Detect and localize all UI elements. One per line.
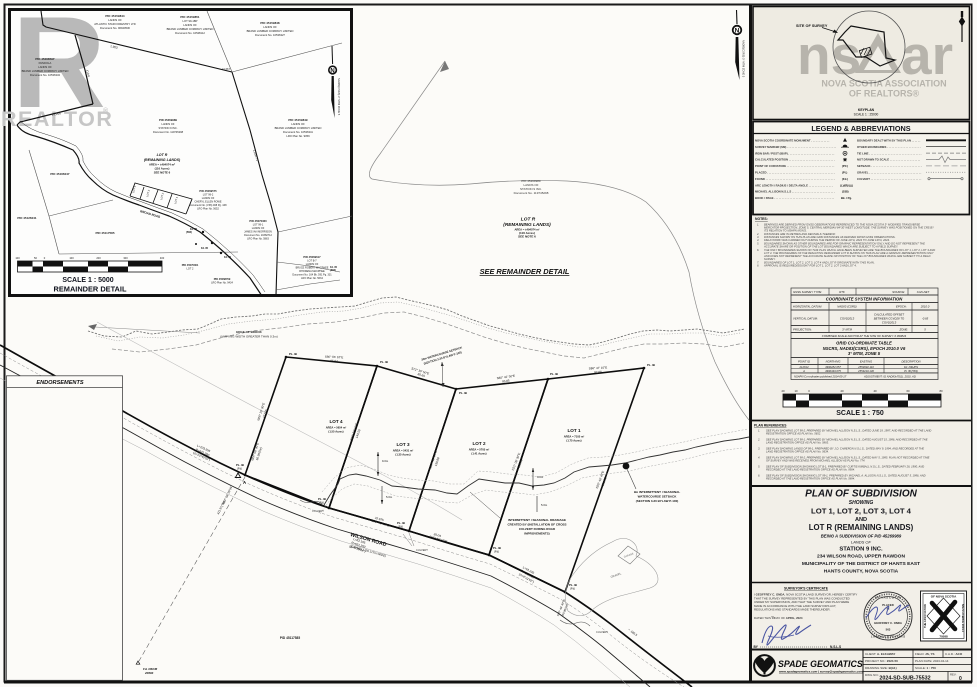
svg-text:ARC LENGTH / RADIUS / DELTA AN: ARC LENGTH / RADIUS / DELTA ANGLE . . . … — [755, 183, 833, 187]
svg-text:(583): (583) — [186, 231, 192, 234]
svg-text:0: 0 — [959, 676, 962, 682]
svg-text:PL. IB: PL. IB — [380, 360, 388, 364]
svg-text:LOT 3: LOT 3 — [396, 442, 409, 447]
svg-text:LOT 1: LOT 1 — [567, 428, 580, 433]
svg-text:CGVD2013: CGVD2013 — [882, 321, 897, 325]
svg-text:-0.65: -0.65 — [922, 317, 929, 321]
svg-text:Fd. IB: Fd. IB — [201, 247, 208, 250]
svg-text:4990282.057: 4990282.057 — [825, 365, 841, 369]
svg-text:POINT ID: POINT ID — [798, 360, 810, 364]
svg-text:LOT R (REMAINING LANDS): LOT R (REMAINING LANDS) — [809, 523, 914, 532]
svg-text:ENDORSEMENTS: ENDORSEMENTS — [36, 380, 84, 386]
svg-text:100: 100 — [69, 256, 74, 260]
svg-text:60: 60 — [906, 389, 910, 393]
svg-text:CGVD2013: CGVD2013 — [840, 317, 855, 321]
svg-text:TIE LINE . . . . . . . . . . .: TIE LINE . . . . . . . . . . . . . . . .… — [857, 151, 922, 155]
svg-text:234 WILSON ROAD, UPPER RAWDON: 234 WILSON ROAD, UPPER RAWDON — [817, 554, 906, 560]
svg-text:PID 45166047: PID 45166047 — [50, 172, 70, 176]
svg-text:REALTOR: REALTOR — [1, 107, 113, 131]
svg-text:5.0m: 5.0m — [541, 503, 548, 507]
svg-text:CALCULATED POSITION . . . . .: CALCULATED POSITION . . . . . . . . . . … — [755, 158, 835, 162]
svg-text:PROJECTION:: PROJECTION: — [793, 327, 812, 331]
svg-text:VERTICAL DATUM:: VERTICAL DATUM: — [793, 317, 818, 321]
svg-text:5.: 5. — [758, 465, 760, 469]
svg-text:AREA = 7105 m²: AREA = 7105 m² — [564, 435, 585, 439]
svg-text:BRAND LUMBER COMPANY LIMITED: BRAND LUMBER COMPANY LIMITED — [247, 29, 294, 33]
svg-text:(583): (583) — [330, 269, 336, 272]
svg-text:563: 563 — [886, 628, 891, 632]
svg-text:NAD83(CSRS) 3° MTM ZONE 5: NAD83(CSRS) 3° MTM ZONE 5 — [337, 78, 341, 116]
svg-text:SCALE 1 : 750: SCALE 1 : 750 — [836, 410, 884, 417]
svg-text:PANDOLA: PANDOLA — [39, 61, 52, 65]
svg-text:APPROVAL IS REQUIRED/SOUGHT FO: APPROVAL IS REQUIRED/SOUGHT FOR LOT 1, L… — [763, 264, 857, 268]
svg-text:SHOWING: SHOWING — [849, 500, 874, 506]
svg-text:FIELD: JS, YS: FIELD: JS, YS — [915, 652, 934, 656]
svg-text:41,667: 41,667 — [222, 67, 230, 71]
svg-text:www.spadegeomatics.com | surve: www.spadegeomatics.com | survey@spadegeo… — [779, 670, 863, 674]
svg-text:KEYPLAN: KEYPLAN — [858, 108, 875, 112]
svg-text:LOT 2: LOT 2 — [187, 268, 195, 271]
svg-text:NSLS LICENCE 2024-1: NSLS LICENCE 2024-1 — [961, 604, 965, 632]
svg-text:LOT 4: LOT 4 — [329, 419, 342, 424]
svg-text:(Fd): (Fd) — [570, 587, 575, 591]
svg-text:(VARYING WIDTH GREATER THAN 0.: (VARYING WIDTH GREATER THAN 0.3m) — [220, 335, 277, 339]
svg-text:BRAND LUMBER COMPANY LIMITED: BRAND LUMBER COMPANY LIMITED — [275, 126, 322, 130]
svg-text:4.: 4. — [757, 238, 759, 242]
svg-text:(REMAINING LANDS): (REMAINING LANDS) — [503, 222, 551, 227]
svg-text:LAND REGISTRATION OFFICE AS PL: LAND REGISTRATION OFFICE AS PLAN No. 588… — [766, 441, 829, 445]
svg-text:PID 45159848: PID 45159848 — [260, 21, 280, 25]
svg-text:Bk. / Pg.: Bk. / Pg. — [841, 196, 852, 200]
svg-text:LANDS OF: LANDS OF — [162, 122, 175, 126]
svg-text:PID 45159849: PID 45159849 — [288, 118, 308, 122]
svg-text:ACCURATE SHAPE OR POSITION OF: ACCURATE SHAPE OR POSITION OF THE LOT BO… — [763, 245, 898, 249]
svg-text:CAN-NET: CAN-NET — [917, 290, 930, 294]
svg-text:3° MTM: 3° MTM — [842, 327, 852, 331]
svg-text:STATION 9 INC.: STATION 9 INC. — [839, 547, 883, 553]
svg-text:PID 45159851: PID 45159851 — [180, 15, 200, 19]
svg-text:2553210.130: 2553210.130 — [857, 369, 874, 373]
svg-text:CULVERT . . . . . . . . . . .: CULVERT . . . . . . . . . . . . . . . . … — [857, 177, 922, 181]
svg-text:(Fd): (Fd) — [494, 550, 499, 554]
svg-text:PL. IB: PL. IB — [550, 372, 558, 376]
svg-text:97.66: 97.66 — [594, 370, 602, 374]
svg-text:LRO Plan No. 9059: LRO Plan No. 9059 — [286, 134, 310, 138]
svg-text:NAD83 (CSRS): NAD83 (CSRS) — [837, 304, 856, 308]
svg-text:LOT R: LOT R — [157, 153, 168, 157]
svg-text:ar: ar — [901, 24, 953, 86]
svg-text:PID 45070361: PID 45070361 — [182, 263, 199, 267]
svg-text:SURVEY.: SURVEY. — [764, 257, 776, 261]
svg-text:AREA = 5654 m²: AREA = 5654 m² — [326, 426, 347, 430]
svg-text:PID 45068597: PID 45068597 — [35, 57, 55, 61]
svg-text:LRO Plan No. 5652: LRO Plan No. 5652 — [197, 208, 219, 211]
svg-text:4.: 4. — [758, 456, 760, 460]
svg-text:PID 45069617: PID 45069617 — [303, 255, 321, 259]
svg-text:PID 45117585: PID 45117585 — [280, 636, 300, 640]
svg-text:N O V A S C O T I A: N O V A S C O T I A — [875, 596, 900, 600]
svg-text:ZONE:: ZONE: — [898, 327, 908, 331]
svg-text:MICHAEL ALLISON N.S.L.S . . .: MICHAEL ALLISON N.S.L.S . . . . . . . . … — [755, 190, 835, 194]
svg-text:L A N D S U R V E Y O R S: L A N D S U R V E Y O R S — [871, 635, 905, 639]
svg-text:REMAINDER DETAIL: REMAINDER DETAIL — [54, 285, 127, 294]
svg-text:(SECTION 3.30 BYLAW P-100): (SECTION 3.30 BYLAW P-100) — [636, 499, 679, 503]
svg-text:N: N — [330, 68, 334, 74]
svg-text:PLAN REFERENCES: PLAN REFERENCES — [754, 424, 787, 428]
svg-text:(REMAINING LANDS): (REMAINING LANDS) — [144, 158, 181, 162]
svg-text:SURVEY MARKER (SM) . . . . . .: SURVEY MARKER (SM) . . . . . . . . . . .… — [755, 145, 836, 149]
svg-text:COMBINED SCALE FACTOR AT THE S: COMBINED SCALE FACTOR AT THE SITE OF SUR… — [822, 334, 907, 338]
svg-text:EASTING: EASTING — [860, 360, 873, 364]
svg-text:ITS RELATION TO NSHPN MON'S.: ITS RELATION TO NSHPN MON'S. — [764, 229, 807, 233]
svg-text:PID 45126041: PID 45126041 — [17, 216, 37, 220]
svg-text:THE ASSOCIATION: THE ASSOCIATION — [923, 604, 927, 628]
svg-text:BOOK / PAGE . . . . . . . . .: BOOK / PAGE . . . . . . . . . . . . . . … — [755, 196, 834, 200]
svg-text:CREATED BY (INSTALLATION OF CR: CREATED BY (INSTALLATION OF CROSS — [507, 523, 566, 527]
svg-text:SEE REMAINDER DETAIL: SEE REMAINDER DETAIL — [480, 267, 570, 276]
svg-text:RECORDED AT THE LAND REGISTRAT: RECORDED AT THE LAND REGISTRATION OFFICE… — [766, 477, 855, 481]
svg-text:2010.0: 2010.0 — [920, 304, 930, 308]
svg-text:RECORDED AT THE LAND REGISTRAT: RECORDED AT THE LAND REGISTRATION OFFICE… — [766, 468, 855, 472]
svg-text:8.: 8. — [757, 264, 759, 268]
svg-text:DAY OF APRIL, 2024: DAY OF APRIL, 2024 — [775, 616, 803, 620]
svg-text:40: 40 — [873, 389, 877, 393]
svg-text:LANDS OF: LANDS OF — [108, 18, 122, 22]
svg-text:®: ® — [103, 107, 109, 115]
svg-text:FIELD WORK WAS CARRIED OUT DUR: FIELD WORK WAS CARRIED OUT DURING THE PE… — [764, 238, 890, 242]
svg-text:EDGE OF BROOK: EDGE OF BROOK — [236, 330, 262, 334]
svg-text:GNSS SURVEY TYPE:: GNSS SURVEY TYPE: — [793, 290, 822, 294]
svg-text:HORIZONTAL DATUM:: HORIZONTAL DATUM: — [793, 304, 822, 308]
svg-text:BRAND LUMBER COMPANY LIMITED: BRAND LUMBER COMPANY LIMITED — [167, 27, 214, 31]
svg-text:PROJECT NO.: 2024-50: PROJECT NO.: 2024-50 — [865, 659, 898, 663]
svg-text:EPOCH:: EPOCH: — [896, 304, 907, 308]
svg-text:(L)/(R)/(Δ): (L)/(R)/(Δ) — [840, 183, 853, 187]
svg-text:300: 300 — [123, 256, 128, 260]
svg-text:NOVA SCOTIA COORDINATE MONUMEN: NOVA SCOTIA COORDINATE MONUMENT . . . . … — [755, 139, 829, 143]
svg-text:LANDS OF: LANDS OF — [38, 65, 52, 69]
svg-text:PID 45117585: PID 45117585 — [95, 231, 114, 235]
svg-text:DESCRIPTION: DESCRIPTION — [901, 360, 921, 364]
svg-text:WATERCOURSE SETBACK: WATERCOURSE SETBACK — [638, 495, 678, 499]
svg-text:DRAWING SIZE: B(A1): DRAWING SIZE: B(A1) — [865, 666, 897, 670]
svg-text:4990433.075: 4990433.075 — [825, 369, 841, 373]
svg-text:LOT 1, LOT 2, LOT 3, LOT 4: LOT 1, LOT 2, LOT 3, LOT 4 — [811, 507, 912, 516]
svg-text:(1.41 Acres): (1.41 Acres) — [471, 452, 486, 456]
svg-text:OF SURVEY AND WAS RECEIVED FRO: OF SURVEY AND WAS RECEIVED FROM MICHAEL … — [766, 459, 865, 463]
svg-text:(Fd): (Fd) — [237, 467, 242, 471]
svg-text:10: 10 — [794, 389, 798, 393]
svg-text:(Pl.): (Pl.) — [842, 171, 847, 175]
svg-text:Document No. 10536343: Document No. 10536343 — [30, 73, 60, 77]
svg-text:BOUNDARY DEALT WITH BY THIS PL: BOUNDARY DEALT WITH BY THIS PLAN . . . .… — [857, 139, 921, 143]
svg-text:ATLANTIC STAR FORESTRY LTD: ATLANTIC STAR FORESTRY LTD — [94, 22, 135, 26]
svg-text:CLIENT: A. ELKAWAY: CLIENT: A. ELKAWAY — [865, 652, 895, 656]
svg-text:AREA = 5705 m²: AREA = 5705 m² — [469, 448, 490, 452]
svg-text:GRID CO-ORDINATE TABLE: GRID CO-ORDINATE TABLE — [836, 341, 892, 346]
svg-text:NSCRS, NAD83(CSRS), EPOCH 2010: NSCRS, NAD83(CSRS), EPOCH 2010.0 V6 — [823, 346, 906, 351]
svg-text:N.S.L.S: N.S.L.S — [830, 645, 841, 649]
svg-text:AND DOES NOT REPRESENT THE AC: AND DOES NOT REPRESENT THE ACCURATE SHAP… — [763, 254, 930, 258]
svg-text:SEE NOTE 6: SEE NOTE 6 — [518, 235, 536, 239]
svg-text:CULVERT DURING ROAD: CULVERT DURING ROAD — [519, 527, 556, 531]
svg-text:SPADE GEOMATICS: SPADE GEOMATICS — [778, 659, 863, 669]
svg-text:(1.35 Acres): (1.35 Acres) — [395, 453, 410, 457]
svg-text:LOT 2: LOT 2 — [472, 441, 485, 446]
svg-text:CULVERT: CULVERT — [416, 548, 428, 552]
svg-text:2.: 2. — [757, 438, 760, 442]
svg-text:OTHER BOUNDARIES . . . . . . .: OTHER BOUNDARIES . . . . . . . . . . . .… — [857, 145, 921, 149]
svg-text:PID 45068769: PID 45068769 — [214, 277, 231, 281]
svg-text:OF REALTORS®: OF REALTORS® — [849, 89, 920, 99]
svg-text:Fd. IB: Fd. IB — [224, 256, 231, 259]
svg-text:5.0m: 5.0m — [386, 495, 393, 499]
svg-text:3.: 3. — [758, 447, 760, 451]
svg-text:200: 200 — [96, 256, 101, 260]
svg-text:(Fd.): (Fd.) — [842, 177, 848, 181]
svg-text:LEGEND & ABBREVIATIONS: LEGEND & ABBREVIATIONS — [811, 124, 910, 133]
svg-text:CULVERT: CULVERT — [312, 509, 324, 513]
svg-text:3° MTM, ZONE 5: 3° MTM, ZONE 5 — [848, 351, 881, 356]
svg-text:LANDS OF: LANDS OF — [263, 25, 277, 29]
svg-text:N: N — [735, 28, 740, 35]
svg-text:PID 45070360: PID 45070360 — [249, 219, 267, 223]
svg-text:SITE OF SURVEY: SITE OF SURVEY — [796, 24, 828, 28]
svg-text:ADJUSTMENT: ID NAD83v70(1)_201: ADJUSTMENT: ID NAD83v70(1)_2010_AD — [863, 375, 916, 379]
svg-text:IMPROVEMENTS): IMPROVEMENTS) — [524, 532, 549, 536]
svg-text:BRAND LUMBER COMPANY LIMITED: BRAND LUMBER COMPANY LIMITED — [22, 69, 69, 73]
svg-text:Document No. 119745298: Document No. 119745298 — [153, 130, 184, 134]
svg-text:AREA = 5431 m²: AREA = 5431 m² — [393, 449, 414, 453]
svg-text:SOURCE:: SOURCE: — [892, 290, 905, 294]
svg-text:PL. IB: PL. IB — [459, 391, 467, 395]
svg-text:1.: 1. — [758, 429, 760, 433]
svg-text:Document No. 96940530: Document No. 96940530 — [100, 26, 130, 30]
svg-text:400: 400 — [160, 256, 165, 260]
svg-text:PL. IB: PL. IB — [289, 352, 297, 356]
svg-text:LOT 99-1BP: LOT 99-1BP — [183, 19, 198, 23]
svg-text:GRAVEL . . . . . . . . . . . .: GRAVEL . . . . . . . . . . . . . . . . .… — [857, 171, 921, 175]
svg-text:GEOFFREY C. ONDA: GEOFFREY C. ONDA — [874, 621, 902, 625]
svg-text:MUNICIPALITY OF THE DISTRICT O: MUNICIPALITY OF THE DISTRICT OF HANTS EA… — [802, 561, 920, 567]
svg-text:Pl. IB (583): Pl. IB (583) — [904, 369, 918, 373]
svg-text:CULVERT: CULVERT — [596, 630, 608, 634]
svg-text:6.: 6. — [757, 248, 759, 252]
svg-text:LAND REGISTRATION OFFICE AS PL: LAND REGISTRATION OFFICE AS PLAN No. 563… — [766, 450, 829, 454]
svg-text:Document No. 10528112: Document No. 10528112 — [175, 31, 205, 35]
svg-text:Document No. 10536341: Document No. 10536341 — [283, 130, 313, 134]
svg-text:(1.75 Acres): (1.75 Acres) — [566, 439, 581, 443]
svg-text:NOT DRAWN TO SCALE . . . . . .: NOT DRAWN TO SCALE . . . . . . . . . . .… — [857, 158, 920, 162]
svg-text:212814: 212814 — [799, 365, 809, 369]
svg-text:SETBACK . . . . . . . . . . .: SETBACK . . . . . . . . . . . . . . . . … — [857, 164, 922, 168]
svg-text:LRO Plan No. 5634: LRO Plan No. 5634 — [301, 277, 323, 280]
svg-text:BEING A SUBDIVISION OF PID 452: BEING A SUBDIVISION OF PID 45269989 — [821, 534, 902, 539]
svg-text:IRON BAR / POST (IB/IP) . . .: IRON BAR / POST (IB/IP) . . . . . . . . … — [755, 151, 834, 155]
svg-text:9m INTERMITTENT / SEASONAL: 9m INTERMITTENT / SEASONAL — [634, 490, 681, 494]
svg-text:LRO Plan No. 5883: LRO Plan No. 5883 — [247, 238, 269, 241]
svg-text:PLACED . . . . . . . . . . . .: PLACED . . . . . . . . . . . . . . . . .… — [755, 171, 835, 175]
svg-text:ns: ns — [797, 24, 861, 86]
svg-text:SCALE: 1 : 750: SCALE: 1 : 750 — [915, 666, 936, 670]
svg-text:COORDINATE SYSTEM INFORMATION: COORDINATE SYSTEM INFORMATION — [826, 297, 904, 302]
svg-text:NSHPN Co-ordinates published 2: NSHPN Co-ordinates published 2014-05-17 — [794, 375, 847, 379]
svg-text:(538): (538) — [842, 190, 849, 194]
svg-text:5.: 5. — [757, 242, 759, 246]
svg-text:LANDS OF: LANDS OF — [291, 122, 305, 126]
svg-text:POINT OF CURVATURE . . . . . .: POINT OF CURVATURE . . . . . . . . . . .… — [755, 164, 834, 168]
svg-text:OF NOVA SCOTIA: OF NOVA SCOTIA — [931, 595, 957, 599]
svg-text:Document No. 119745298: Document No. 119745298 — [514, 191, 549, 195]
svg-text:PL. IB: PL. IB — [647, 363, 655, 367]
svg-text:LRO Plan No. 9434: LRO Plan No. 9434 — [211, 282, 233, 285]
svg-text:A: A — [243, 480, 246, 485]
svg-text:HANTS COUNTY, NOVA SCOTIA: HANTS COUNTY, NOVA SCOTIA — [824, 569, 899, 575]
svg-text:PID 45269989: PID 45269989 — [159, 118, 177, 122]
svg-text:A: A — [802, 369, 805, 373]
svg-text:PLAN OF SUBDIVISION: PLAN OF SUBDIVISION — [805, 489, 917, 500]
svg-text:80: 80 — [939, 389, 943, 393]
svg-text:20: 20 — [840, 389, 844, 393]
svg-text:PLAN DATE: 2023-04-14: PLAN DATE: 2023-04-14 — [915, 659, 949, 663]
svg-text:NORTHING: NORTHING — [826, 360, 842, 364]
svg-text:2553032.110: 2553032.110 — [857, 365, 874, 369]
svg-text:6.: 6. — [758, 474, 760, 478]
svg-text:1.: 1. — [757, 223, 759, 227]
svg-text:20: 20 — [781, 389, 785, 393]
svg-text:(1.55 Acres): (1.55 Acres) — [328, 430, 343, 434]
svg-text:70588: 70588 — [939, 635, 948, 639]
svg-text:SURVEYOR'S CERTIFICATE: SURVEYOR'S CERTIFICATE — [784, 587, 829, 591]
svg-text:C.A.D.: ACO: C.A.D.: ACO — [945, 652, 963, 656]
svg-text:95.04: 95.04 — [330, 359, 338, 363]
svg-text:9.0m: 9.0m — [537, 475, 544, 479]
svg-text:LANDS OF: LANDS OF — [851, 540, 872, 545]
svg-text:INTERMITTENT / SEASONAL DRAINA: INTERMITTENT / SEASONAL DRAINAGE — [508, 518, 566, 522]
svg-text:DWG NO.:: DWG NO.: — [865, 673, 879, 677]
svg-text:PID 45159844: PID 45159844 — [105, 14, 125, 18]
svg-text:SCALE 1 : 25000: SCALE 1 : 25000 — [854, 113, 879, 117]
svg-text:LANDS OF: LANDS OF — [183, 23, 197, 27]
svg-text:FOUND . . . . . . . . . . . .: FOUND . . . . . . . . . . . . . . . . . … — [755, 177, 835, 181]
svg-text:SCALE 1 : 5000: SCALE 1 : 5000 — [62, 277, 113, 284]
svg-text:Document No. 10536327: Document No. 10536327 — [255, 33, 285, 37]
svg-text:NOTES:: NOTES: — [755, 217, 768, 221]
svg-text:PID 45069575: PID 45069575 — [199, 189, 217, 193]
svg-text:SEE NOTE 6: SEE NOTE 6 — [154, 171, 171, 175]
svg-text:REGISTRATION OFFICE AS PLAN No: REGISTRATION OFFICE AS PLAN No. 5652. — [766, 432, 821, 436]
svg-text:Fd. NSHPN: Fd. NSHPN — [904, 365, 918, 369]
svg-text:(PC): (PC) — [842, 164, 848, 168]
svg-text:REGULATIONS AND STANDARDS MADE: REGULATIONS AND STANDARDS MADE THEREUNDE… — [754, 608, 831, 612]
svg-text:20694: 20694 — [144, 671, 154, 675]
svg-text:9.0m: 9.0m — [382, 459, 389, 463]
svg-text:RTK: RTK — [839, 290, 845, 294]
svg-text:2024-SD-SUB-75532: 2024-SD-SUB-75532 — [879, 676, 930, 682]
svg-text:100: 100 — [15, 256, 20, 260]
svg-text:NAD83(CSRS) 3° MTM ZONE 5: NAD83(CSRS) 3° MTM ZONE 5 — [742, 40, 746, 78]
svg-text:REV:: REV: — [950, 673, 957, 677]
svg-text:STATION 9 INC.: STATION 9 INC. — [159, 126, 178, 130]
